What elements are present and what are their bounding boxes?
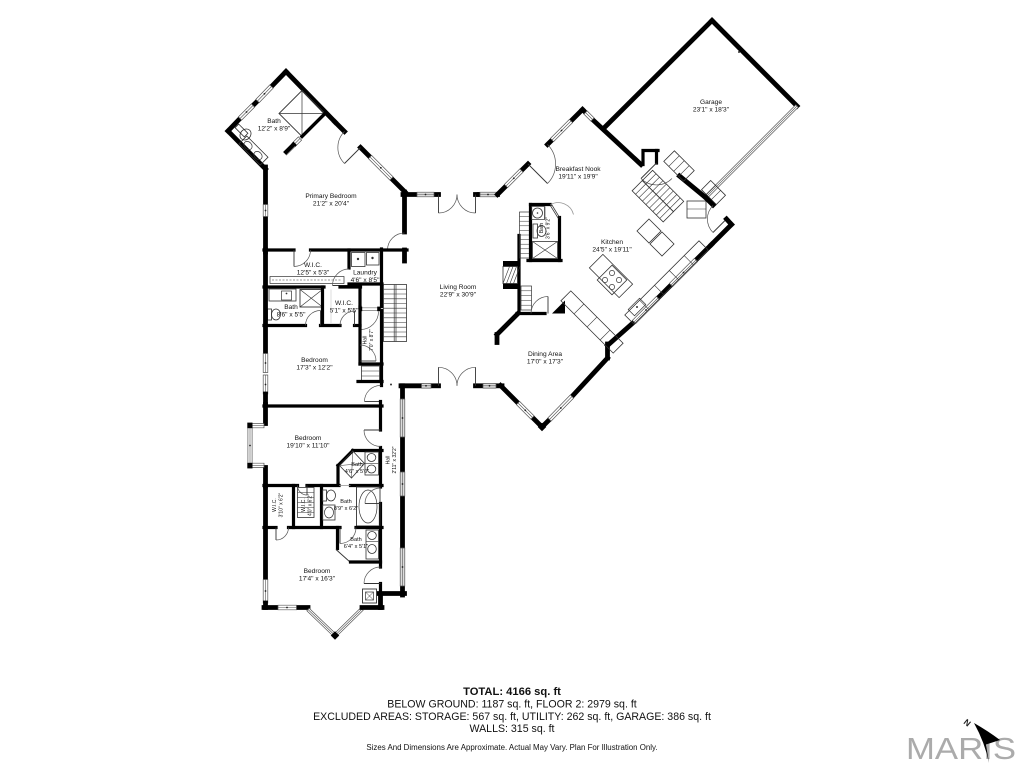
svg-text:17'0" x 17'3": 17'0" x 17'3": [527, 359, 564, 366]
svg-text:Bedroom: Bedroom: [295, 435, 322, 442]
svg-text:4'0" x 6'2": 4'0" x 6'2": [307, 494, 313, 516]
svg-text:Dining Area: Dining Area: [528, 351, 562, 358]
svg-text:23'1" x 18'3": 23'1" x 18'3": [693, 107, 730, 114]
svg-text:BELOW GROUND: 1187 sq. ft, FLO: BELOW GROUND: 1187 sq. ft, FLOOR 2: 2979…: [387, 699, 636, 711]
svg-text:Living Room: Living Room: [440, 284, 477, 291]
svg-text:12'2" x 8'9": 12'2" x 8'9": [258, 126, 291, 133]
svg-text:WALLS: 315 sq. ft: WALLS: 315 sq. ft: [470, 723, 555, 735]
svg-text:Breakfast Nook: Breakfast Nook: [555, 166, 601, 173]
svg-text:Bedroom: Bedroom: [301, 357, 328, 364]
svg-text:12'5" x 5'3": 12'5" x 5'3": [297, 270, 330, 277]
svg-text:W.I.C.: W.I.C.: [301, 498, 307, 512]
svg-text:22'9" x 30'9": 22'9" x 30'9": [440, 292, 477, 299]
svg-text:8'9" x 6'2": 8'9" x 6'2": [334, 506, 358, 512]
svg-text:Bath: Bath: [350, 537, 362, 543]
svg-text:2'11" x 32'2": 2'11" x 32'2": [392, 446, 398, 473]
svg-text:3'10" x 6'2": 3'10" x 6'2": [278, 492, 284, 517]
svg-text:17'4" x 16'3": 17'4" x 16'3": [299, 576, 336, 583]
svg-text:Garage: Garage: [700, 99, 722, 106]
svg-text:4'6" x 5'0": 4'6" x 5'0": [345, 469, 369, 475]
svg-text:Primary Bedroom: Primary Bedroom: [305, 193, 357, 200]
svg-text:19'11" x 19'9": 19'11" x 19'9": [558, 174, 598, 181]
svg-text:Hall: Hall: [363, 336, 369, 345]
svg-text:3'6" x 9'2": 3'6" x 9'2": [545, 217, 551, 239]
svg-text:MARIS: MARIS: [906, 731, 1016, 766]
svg-text:W.I.C.: W.I.C.: [304, 262, 322, 269]
svg-text:8'6" x 5'5": 8'6" x 5'5": [277, 312, 306, 319]
svg-text:Laundry: Laundry: [353, 270, 378, 277]
svg-text:Bath: Bath: [284, 304, 298, 311]
svg-text:24'5" x 19'11": 24'5" x 19'11": [592, 247, 632, 254]
svg-text:Sizes And Dimensions Are Appro: Sizes And Dimensions Are Approximate. Ac…: [366, 743, 657, 752]
svg-text:6'4" x 5'1": 6'4" x 5'1": [344, 544, 368, 550]
svg-text:7'0" x 8'7": 7'0" x 8'7": [369, 329, 375, 351]
svg-text:Bath: Bath: [267, 118, 281, 125]
svg-text:Hall: Hall: [386, 456, 392, 465]
svg-text:EXCLUDED AREAS: STORAGE: 567 s: EXCLUDED AREAS: STORAGE: 567 sq. ft, UTI…: [313, 711, 711, 723]
svg-text:Kitchen: Kitchen: [601, 239, 623, 246]
svg-text:W.I.C.: W.I.C.: [335, 300, 353, 307]
svg-text:TOTAL: 4166 sq. ft: TOTAL: 4166 sq. ft: [463, 686, 561, 698]
svg-text:17'3" x 12'2": 17'3" x 12'2": [296, 365, 333, 372]
svg-text:21'2" x 20'4": 21'2" x 20'4": [313, 201, 350, 208]
svg-text:W.I.C.: W.I.C.: [272, 498, 278, 512]
svg-text:Bath: Bath: [539, 223, 545, 234]
svg-text:Bedroom: Bedroom: [304, 568, 331, 575]
svg-text:Bath: Bath: [351, 462, 363, 468]
svg-text:19'10" x 11'10": 19'10" x 11'10": [286, 443, 330, 450]
svg-text:Bath: Bath: [340, 499, 352, 505]
